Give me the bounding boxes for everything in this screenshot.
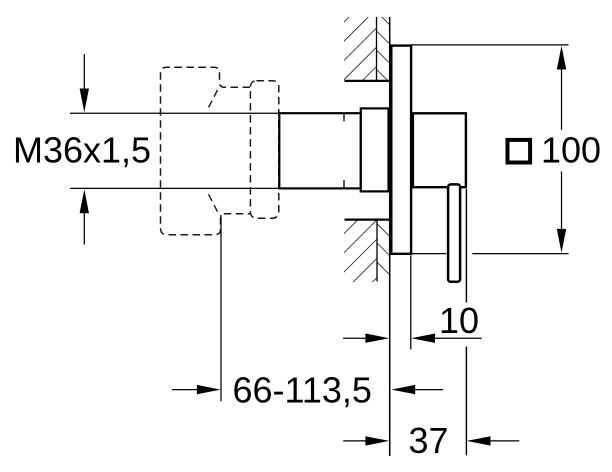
svg-text:37: 37 (409, 420, 449, 461)
svg-text:100: 100 (541, 130, 601, 171)
svg-text:66-113,5: 66-113,5 (233, 370, 372, 411)
svg-text:10: 10 (439, 300, 479, 341)
svg-text:M36x1,5: M36x1,5 (13, 130, 151, 171)
